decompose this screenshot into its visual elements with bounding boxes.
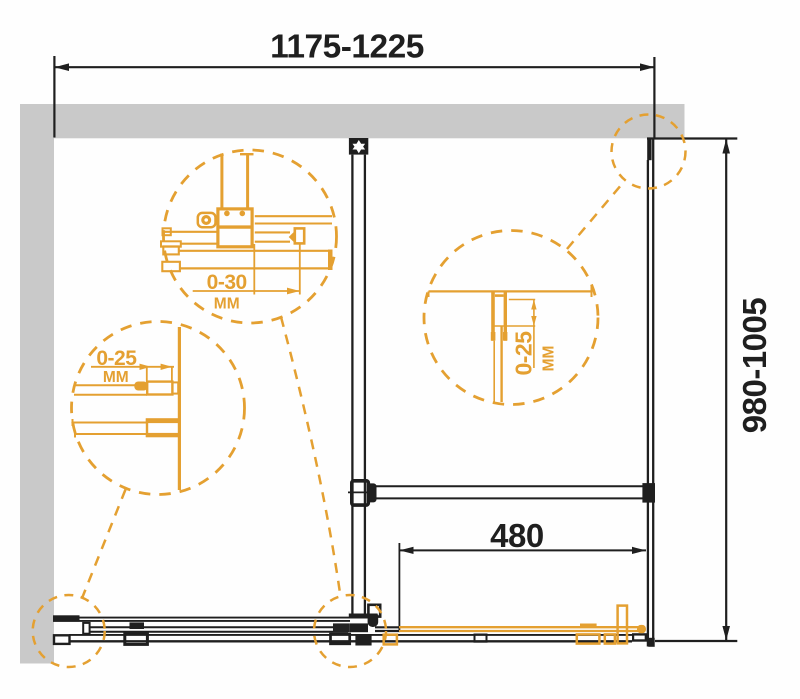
svg-text:0-30: 0-30 — [207, 271, 247, 294]
svg-text:0-25: 0-25 — [96, 347, 137, 370]
svg-text:MM: MM — [214, 296, 240, 313]
svg-text:1175-1225: 1175-1225 — [270, 29, 424, 66]
svg-text:0-25: 0-25 — [511, 331, 537, 376]
svg-text:MM: MM — [541, 346, 558, 372]
svg-text:MM: MM — [103, 369, 129, 386]
svg-text:980-1005: 980-1005 — [736, 298, 773, 434]
svg-text:480: 480 — [490, 517, 544, 554]
